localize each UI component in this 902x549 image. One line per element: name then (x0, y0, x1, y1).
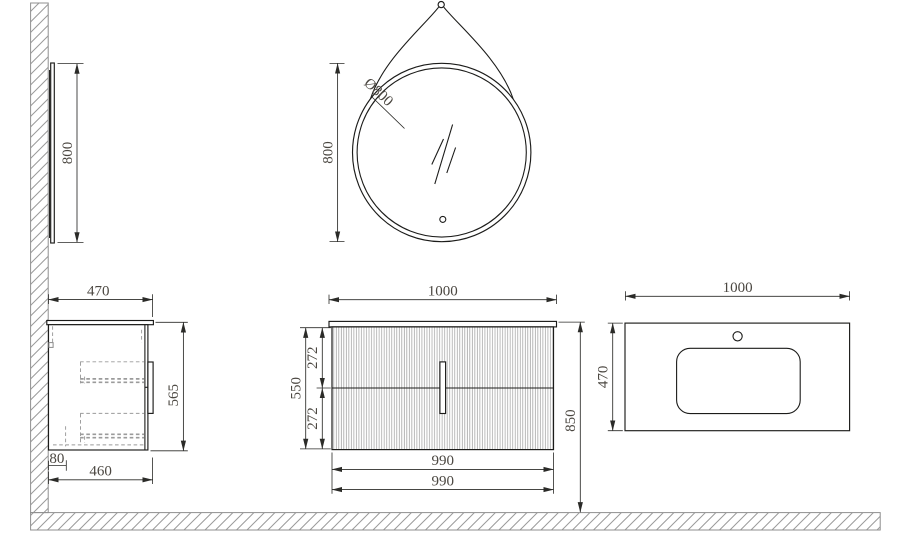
dim-label-800: 800 (321, 141, 337, 164)
technical-drawing-canvas: 800 Ø800 800 (0, 0, 902, 549)
mirror-side-view: 800 (50, 63, 84, 243)
cabinet-body-side (49, 325, 148, 450)
dim-label-990-upper: 990 (432, 453, 455, 469)
dim-label-565: 565 (166, 384, 182, 407)
dim-label-1000: 1000 (428, 283, 458, 299)
vanity-front-view: 1000 550 272 272 850 990 990 (289, 283, 585, 512)
floor-hatch (31, 513, 881, 530)
countertop-slab (625, 323, 850, 431)
dim-mirror-side-height: 800 (58, 64, 84, 243)
mirror-profile (51, 63, 55, 243)
dim-mirror-front-height: 800 (321, 63, 345, 241)
handle-front (440, 362, 446, 414)
dim-front-width: 1000 (329, 283, 557, 304)
countertop-plan-view: 1000 470 (595, 280, 849, 431)
dim-plan-width: 1000 (625, 280, 849, 301)
dim-side-depth: 470 (49, 283, 153, 317)
handle-side (148, 362, 153, 413)
dim-label-460: 460 (89, 464, 112, 480)
dim-plan-depth: 470 (595, 323, 623, 431)
hanging-ring-icon (438, 2, 444, 8)
dim-label-550: 550 (289, 377, 305, 400)
dim-label-1000: 1000 (723, 280, 753, 296)
dim-label-800: 800 (60, 142, 76, 165)
dim-side-height: 565 (151, 322, 188, 451)
dim-wall-gap: 80 (49, 451, 67, 471)
dim-label-850: 850 (563, 409, 579, 432)
dim-install-height: 850 (559, 322, 585, 512)
dim-label-80: 80 (49, 451, 64, 467)
vanity-side-view: 470 565 80 460 (47, 283, 188, 484)
dim-label-990-lower: 990 (432, 473, 455, 489)
dim-label-470: 470 (87, 283, 110, 299)
dim-front-bottom-stack: 990 990 (332, 453, 554, 494)
dim-front-left-stack: 550 272 272 (289, 328, 331, 449)
dim-label-470: 470 (595, 366, 611, 389)
wall-hatch (31, 3, 49, 513)
vanity-mirror-drawing: 800 Ø800 800 (0, 0, 902, 549)
countertop-side (47, 321, 154, 325)
dim-label-272-lower: 272 (305, 407, 321, 430)
countertop-front (329, 321, 557, 327)
mirror-front-view: Ø800 800 (321, 2, 531, 242)
dim-label-272-upper: 272 (305, 347, 321, 370)
